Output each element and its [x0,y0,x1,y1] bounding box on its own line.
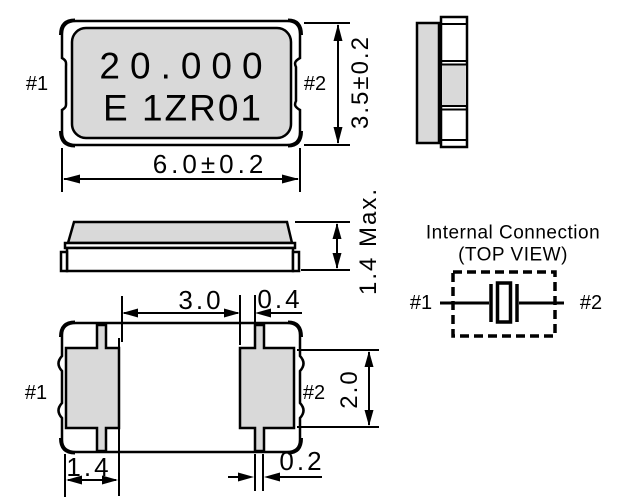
ic-pin1-label: #1 [410,293,432,313]
arrowhead-icon [282,175,299,184]
crystal-resonator-symbol [498,283,511,322]
arrowhead-icon [334,24,343,41]
arrowhead-icon [333,253,342,269]
internal-connection-title: Internal Connection [426,224,600,243]
arrowhead-icon [365,351,374,367]
lid-edge [417,23,439,143]
crystal-blank [442,65,466,107]
arrowhead-icon [224,309,240,318]
arrowhead-icon [333,223,342,239]
arrowhead-icon [63,175,80,184]
arrowhead-icon [334,127,343,144]
dim-height-label: 3.5±0.2 [349,35,373,129]
end-view [417,17,467,147]
dim-tab-width-label: 0.2 [279,448,324,474]
terminal-right [293,252,299,271]
ic-pin2-label: #2 [580,293,602,313]
top-view-pin1-label: #1 [26,74,48,94]
bottom-view [59,322,304,454]
internal-connection-subtitle: (TOP VIEW) [458,246,568,265]
arrowhead-icon [238,473,254,482]
crystal-package-drawing: #1 #2 20.000 E 1ZR01 6.0±0.2 3.5±0.2 1.4… [0,0,628,501]
dim-width-label: 6.0±0.2 [153,151,268,177]
bottom-view-pin1-label: #1 [25,383,47,403]
marking-product-code: E 1ZR01 [103,90,263,127]
metal-lid-side [68,222,292,243]
marking-frequency: 20.000 [99,48,272,85]
dim-pad-height-label: 2.0 [338,369,362,408]
terminal-left [61,252,67,271]
internal-connection [440,272,564,336]
arrowhead-icon [365,410,374,426]
arrowhead-icon [264,473,280,482]
dim-pad-width-label: 1.4 [66,454,111,480]
side-view [61,222,299,271]
arrowhead-icon [122,309,138,318]
bottom-view-pin2-label: #2 [303,383,325,403]
top-view-pin2-label: #2 [304,74,326,94]
dim-pad-gap-label: 3.0 [178,287,223,313]
side-view-dimension [295,222,350,270]
ceramic-base [67,248,293,271]
dim-tab-offset-label: 0.4 [257,286,302,312]
dim-thickness-label: 1.4 Max. [357,187,381,295]
